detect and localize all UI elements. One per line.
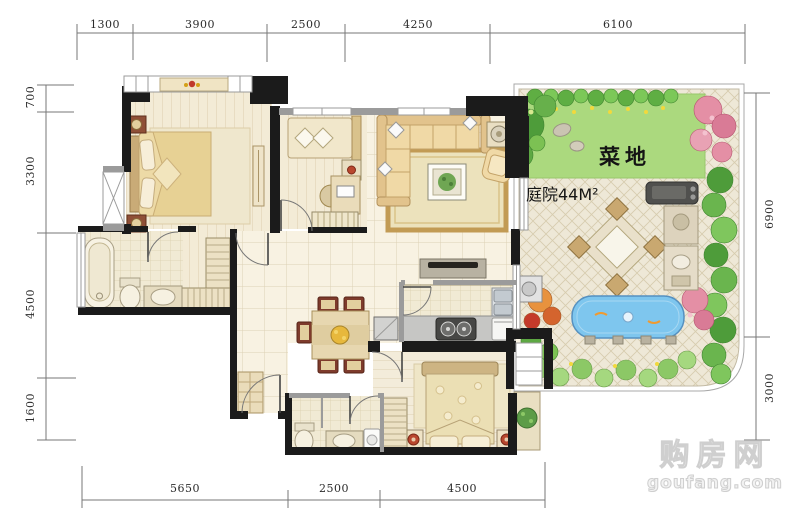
coffee-table — [428, 164, 466, 200]
vegetable-plot-label: 菜地 — [580, 141, 670, 171]
dim-left-1: 700 — [24, 62, 38, 132]
toilet — [120, 278, 140, 309]
bedroom2-bay-window — [516, 343, 542, 385]
dim-top-3: 2500 — [271, 18, 341, 32]
table-centerpiece — [331, 326, 349, 344]
grill — [646, 182, 698, 204]
dim-line-left — [37, 85, 76, 440]
tv-cabinet — [420, 259, 486, 278]
dim-top-5: 6100 — [583, 18, 653, 32]
kitchen-west-wall — [399, 282, 404, 342]
pool — [572, 296, 684, 344]
x-window — [103, 166, 124, 231]
watermark: 购房网 goufang.com — [626, 440, 800, 492]
dim-top-2: 3900 — [165, 18, 235, 32]
planter — [514, 392, 540, 450]
bathroom1-sink — [144, 286, 182, 309]
dim-right-1: 6900 — [763, 179, 777, 249]
kitchen-sink — [492, 288, 514, 316]
courtyard-label: 庭院44M² — [526, 181, 646, 205]
dim-right-2: 3000 — [763, 353, 777, 423]
stove — [436, 318, 476, 340]
bedroom2-bed — [426, 374, 494, 444]
master-bed-headboard — [130, 136, 139, 212]
dim-top-4: 4250 — [383, 18, 453, 32]
dim-left-3: 4500 — [24, 269, 38, 339]
dim-bottom-2: 2500 — [299, 482, 369, 496]
dim-bottom-1: 5650 — [150, 482, 220, 496]
bathroom2-north-wall — [289, 393, 350, 398]
hall-cabinet — [374, 317, 398, 340]
bedroom2-wardrobe — [381, 398, 407, 450]
dim-left-4: 1600 — [24, 373, 38, 443]
dim-left-2: 3300 — [24, 136, 38, 206]
dim-bottom-3: 4500 — [427, 482, 497, 496]
north-wall-band — [279, 108, 466, 115]
dim-top-1: 1300 — [70, 18, 140, 32]
floor-plan: 1300 3900 2500 4250 6100 700 3300 4500 1… — [0, 0, 800, 519]
entrance-furniture — [238, 372, 263, 413]
bay-window — [124, 76, 252, 92]
watermark-site-name: 购房网 — [626, 440, 800, 472]
watermark-site-url: goufang.com — [626, 474, 800, 492]
kitchen-furniture — [403, 285, 515, 342]
bookshelf — [312, 212, 358, 229]
outdoor-counter — [664, 206, 698, 290]
wardrobe-divider — [380, 396, 384, 452]
